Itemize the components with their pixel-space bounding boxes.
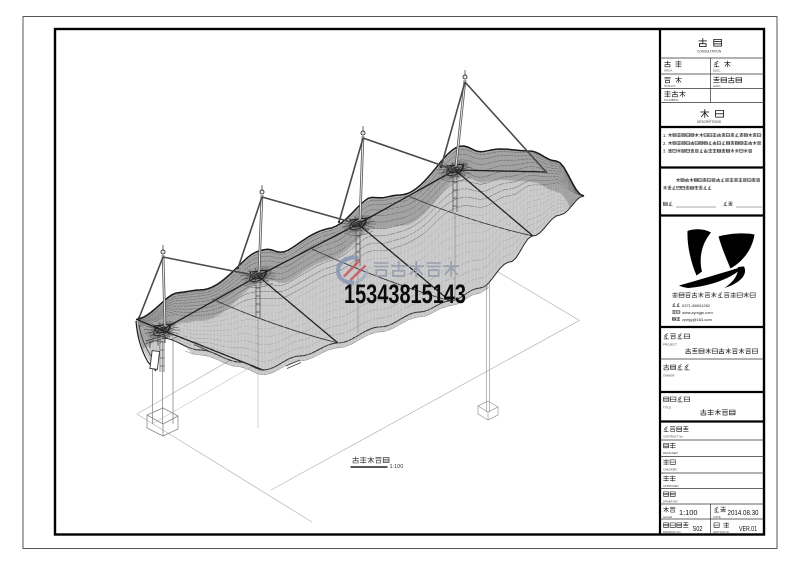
svg-text:HVAC: HVAC [713, 84, 721, 88]
svg-text:1.: 1. [663, 133, 667, 138]
svg-text:3.: 3. [663, 149, 667, 154]
svg-text:ARCH.: ARCH. [664, 69, 673, 73]
svg-text:DESIGNER: DESIGNER [663, 451, 678, 455]
svg-text:STRUCT.: STRUCT. [664, 84, 676, 88]
svg-text:DATE: DATE [714, 515, 721, 519]
svg-text:0371-86541262: 0371-86541262 [682, 303, 711, 308]
svg-text:2.: 2. [663, 141, 667, 146]
svg-text:1:100: 1:100 [390, 464, 404, 470]
svg-text:SCALE: SCALE [663, 515, 672, 519]
svg-text:DRAWN BY: DRAWN BY [663, 500, 678, 504]
svg-text:1:100: 1:100 [679, 508, 698, 517]
svg-text:DESCRIPTIONS: DESCRIPTIONS [697, 120, 721, 124]
svg-text:www.zymjgs.com: www.zymjgs.com [682, 310, 713, 315]
svg-text:APPROVED: APPROVED [663, 484, 679, 488]
svg-text:zymjg@163.com: zymjg@163.com [682, 317, 713, 322]
svg-text:PROJECT: PROJECT [663, 343, 677, 347]
svg-text:15343815143: 15343815143 [344, 279, 466, 309]
svg-text:DRAWING No.: DRAWING No. [663, 530, 682, 534]
svg-text:VER.01: VER.01 [739, 524, 757, 533]
svg-text:CONTRACT No.: CONTRACT No. [663, 435, 684, 439]
svg-text:ELEC.: ELEC. [713, 69, 721, 73]
svg-text:CONSULTATION: CONSULTATION [697, 50, 722, 54]
svg-text:S02: S02 [693, 524, 703, 533]
svg-text:EDITION No.: EDITION No. [714, 530, 731, 534]
svg-text:TITLE: TITLE [663, 406, 671, 410]
svg-text:2014.08.30: 2014.08.30 [728, 508, 759, 517]
svg-text:CHECKER: CHECKER [663, 468, 677, 472]
svg-text:PLUMBING: PLUMBING [664, 98, 679, 102]
svg-text:OWNER: OWNER [663, 374, 675, 378]
